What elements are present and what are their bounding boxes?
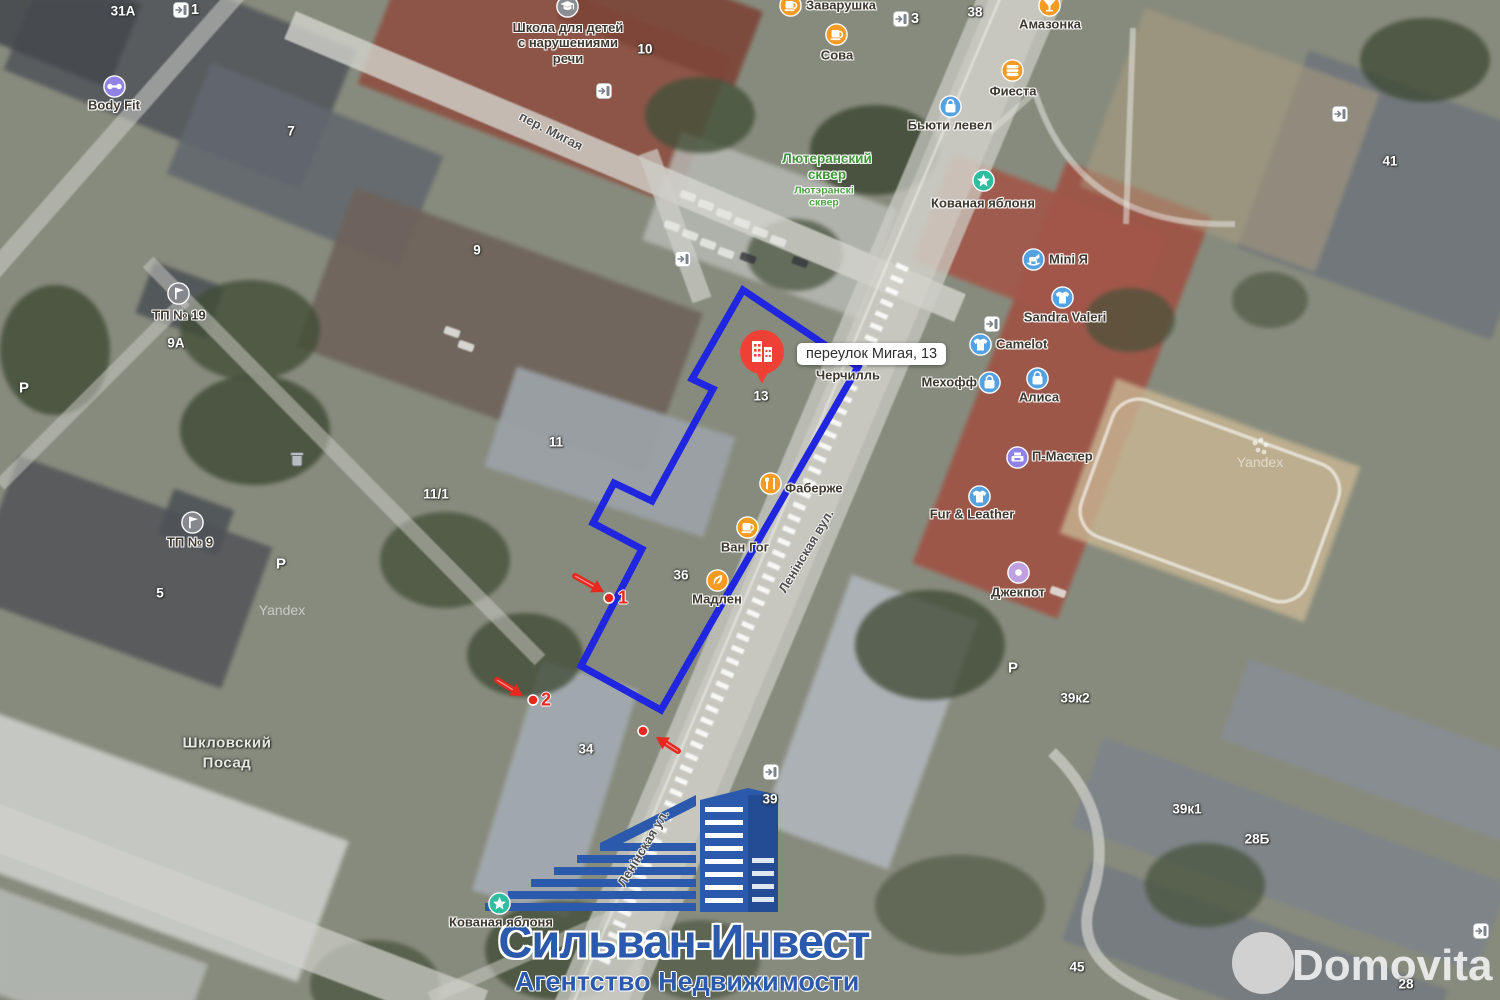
poi-icon[interactable] xyxy=(103,75,126,98)
entrance-number: 3 xyxy=(911,11,919,27)
poi-label[interactable]: Body Fit xyxy=(88,97,140,112)
entrance-icon[interactable] xyxy=(984,316,1000,332)
poi-icon[interactable] xyxy=(1026,367,1049,390)
yandex-watermark: Yandex xyxy=(259,602,305,618)
poi-icon[interactable] xyxy=(167,282,190,305)
poi-icon[interactable] xyxy=(968,485,991,508)
map-canvas[interactable]: Yandex Yandex переулок Мигая, 13 Domovit… xyxy=(0,0,1500,1000)
entrance-icon[interactable] xyxy=(596,83,612,99)
entrance-icon[interactable] xyxy=(173,2,189,18)
entrance-icon[interactable] xyxy=(763,764,779,780)
poi-label[interactable]: Fur & Leather xyxy=(930,506,1015,521)
poi-label[interactable]: Camelot xyxy=(996,336,1047,351)
district-name-label: Шкловский Посад xyxy=(183,734,272,773)
poi-label[interactable]: Mini Я xyxy=(1049,251,1088,266)
agency-logo-title: Сильван-Инвест xyxy=(498,914,869,969)
building-number: 11 xyxy=(549,435,563,450)
park-name-label: Лютеранский сквер xyxy=(782,151,872,183)
building-number: 31А xyxy=(111,4,136,19)
building-number: 39к1 xyxy=(1172,802,1201,817)
poi-icon[interactable] xyxy=(706,569,729,592)
poi-icon[interactable] xyxy=(488,892,511,915)
poi-icon[interactable] xyxy=(1001,59,1024,82)
yandex-watermark: Yandex xyxy=(1237,454,1283,470)
map-labels: Yandex Yandex переулок Мигая, 13 Domovit… xyxy=(0,0,1500,1000)
building-number: 39 xyxy=(762,792,777,807)
poi-icon[interactable] xyxy=(1022,248,1045,271)
poi-icon[interactable] xyxy=(181,511,204,534)
building-number: 45 xyxy=(1069,960,1084,975)
building-number: 5 xyxy=(156,586,164,601)
poi-icon[interactable] xyxy=(1051,286,1074,309)
building-number: 11/1 xyxy=(423,487,449,502)
poi-icon[interactable] xyxy=(1007,561,1030,584)
poi-label[interactable]: Школа для детей с нарушениями речи xyxy=(513,20,624,66)
entrance-icon[interactable] xyxy=(1473,923,1489,939)
poi-label[interactable]: П-Мастер xyxy=(1032,448,1093,463)
building-number: 9А xyxy=(167,336,184,351)
poi-icon[interactable] xyxy=(779,0,802,17)
poi-icon[interactable] xyxy=(556,0,579,18)
poi-icon[interactable] xyxy=(969,333,992,356)
poi-label[interactable]: Фиеста xyxy=(990,83,1037,98)
poi-label[interactable]: ТП № 19 xyxy=(152,307,205,322)
poi-icon[interactable] xyxy=(759,472,782,495)
poi-label[interactable]: Амазонка xyxy=(1019,16,1081,31)
poi-icon[interactable] xyxy=(972,169,995,192)
street-name-label: Ленінская вул. xyxy=(775,507,836,596)
parking-label: P xyxy=(19,380,29,397)
poi-icon[interactable] xyxy=(939,95,962,118)
domovita-logo-circle xyxy=(1232,932,1294,994)
poi-label[interactable]: Джекпот xyxy=(991,584,1045,599)
entrance-icon[interactable] xyxy=(675,251,691,267)
poi-label[interactable]: ТП № 9 xyxy=(167,534,213,549)
building-number: 28Б xyxy=(1245,832,1270,847)
poi-label[interactable]: Черчилль xyxy=(816,367,880,382)
poi-label[interactable]: Sandra Valeri xyxy=(1024,309,1106,324)
building-number: 36 xyxy=(673,568,688,583)
entrance-icon[interactable] xyxy=(1332,106,1348,122)
poi-label[interactable]: Мадлен xyxy=(692,591,742,606)
entrance-icon[interactable] xyxy=(893,11,909,27)
building-number: 41 xyxy=(1382,154,1397,169)
building-number: 9 xyxy=(473,243,481,258)
poi-icon[interactable] xyxy=(825,23,848,46)
building-number: 34 xyxy=(578,742,593,757)
poi-label[interactable]: Заварушка xyxy=(806,0,876,13)
poi-label[interactable]: Ван Гог xyxy=(721,539,769,554)
annotation-number: 1 xyxy=(618,588,628,609)
poi-label[interactable]: Бьюти левел xyxy=(908,117,993,132)
poi-label[interactable]: Кованая яблоня xyxy=(931,195,1035,210)
building-number: 39к2 xyxy=(1060,691,1089,706)
entrance-number: 1 xyxy=(191,2,199,18)
building-number: 7 xyxy=(287,124,295,139)
building-number: 10 xyxy=(637,42,652,57)
street-name-label: пер. Мигая xyxy=(517,109,586,154)
building-number: 13 xyxy=(753,389,768,404)
poi-label[interactable]: Мехофф xyxy=(922,374,978,389)
park-name-label: Лютэранскі сквер xyxy=(794,185,854,210)
poi-label[interactable]: Фаберже xyxy=(785,480,843,495)
poi-label[interactable]: Сова xyxy=(821,47,853,62)
poi-icon[interactable] xyxy=(978,371,1001,394)
parking-label: P xyxy=(1008,660,1018,677)
poi-icon[interactable] xyxy=(1038,0,1061,17)
poi-icon[interactable] xyxy=(736,516,759,539)
street-name-label: Ленінская ул. xyxy=(614,807,672,889)
location-pin-label[interactable]: переулок Мигая, 13 xyxy=(797,343,946,365)
poi-label[interactable]: Кованая яблоня xyxy=(449,914,553,929)
building-number: 38 xyxy=(967,5,982,20)
building-number: 28 xyxy=(1398,977,1413,992)
poi-icon[interactable] xyxy=(1006,446,1029,469)
poi-label[interactable]: Алиса xyxy=(1019,389,1059,404)
domovita-watermark: Domovita xyxy=(1292,941,1492,991)
annotation-number: 2 xyxy=(541,690,551,711)
parking-label: P xyxy=(276,556,286,573)
agency-logo-subtitle: Агентство Недвижимости xyxy=(515,967,860,998)
